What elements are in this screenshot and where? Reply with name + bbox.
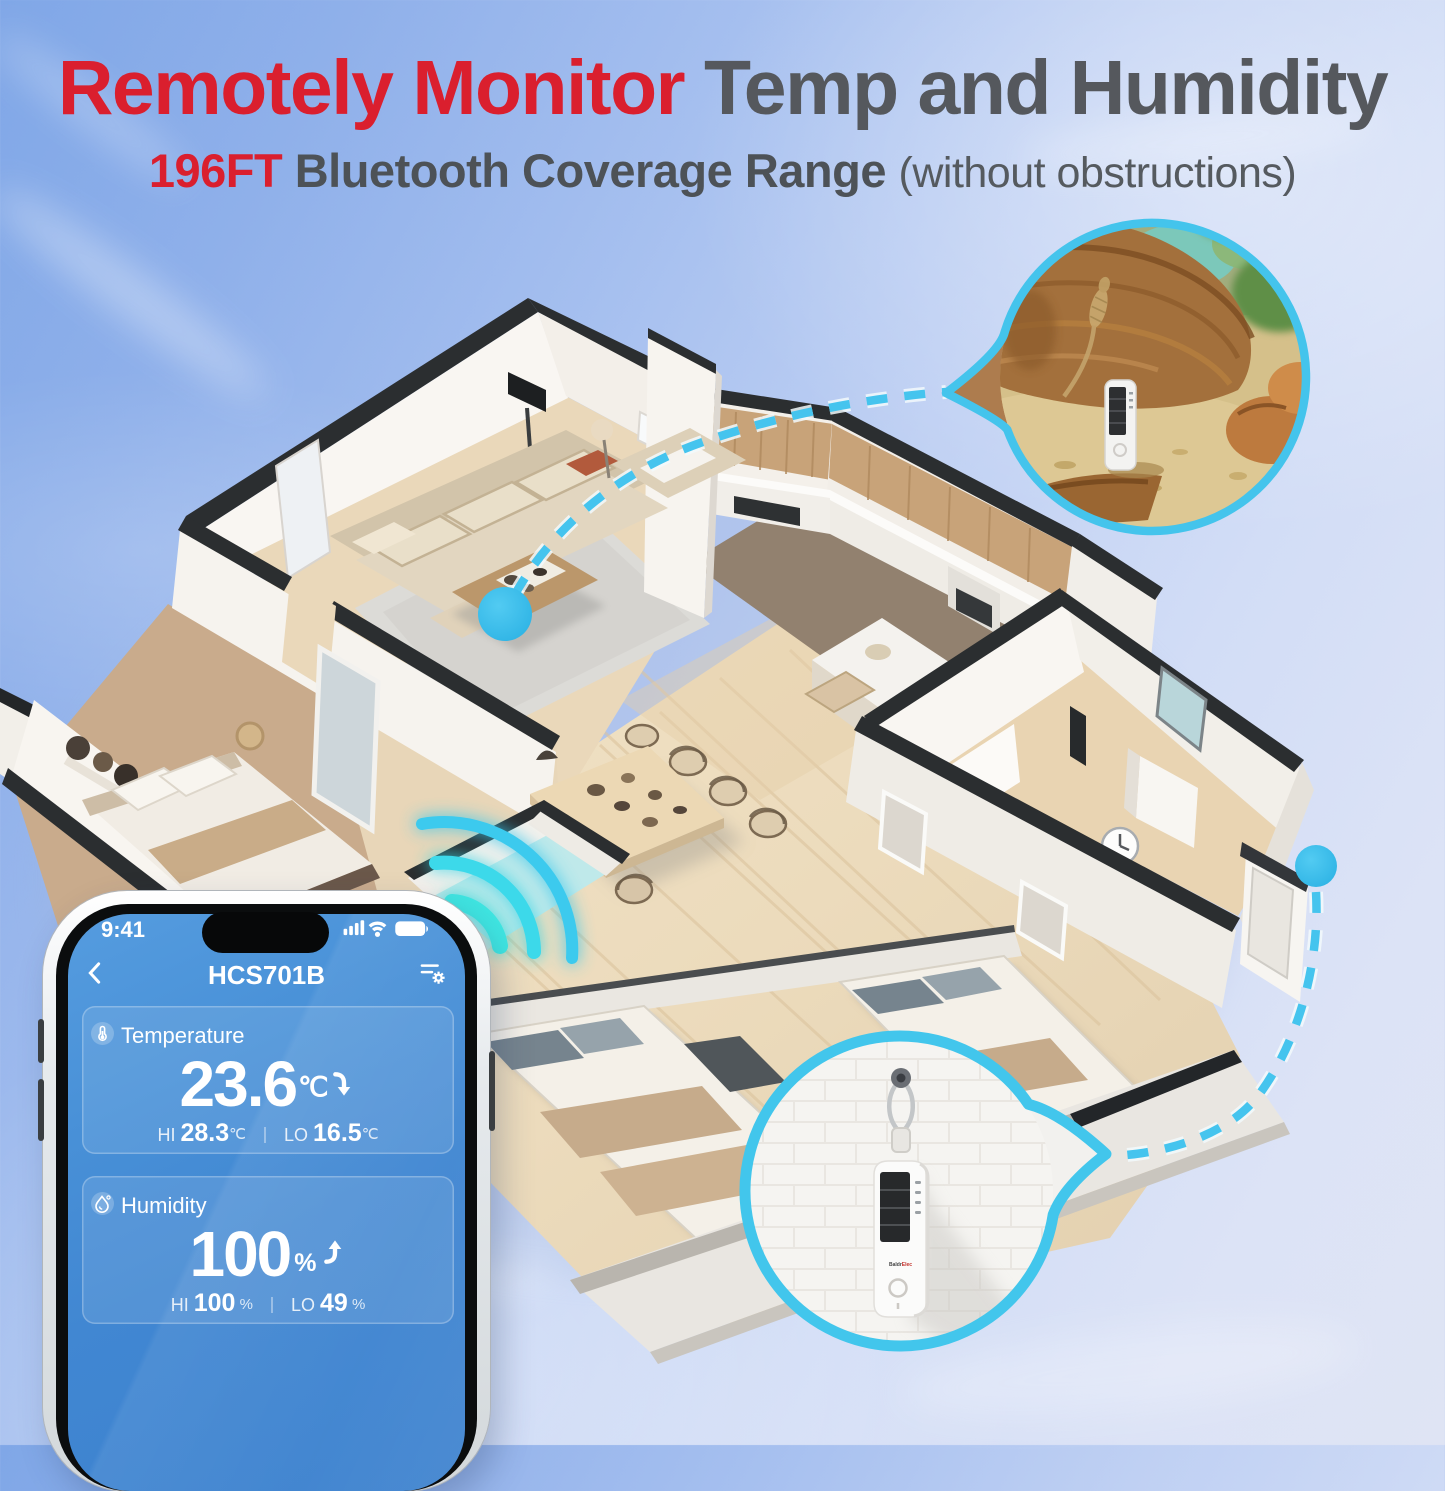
- svg-text:BaldrElec: BaldrElec: [889, 1262, 912, 1268]
